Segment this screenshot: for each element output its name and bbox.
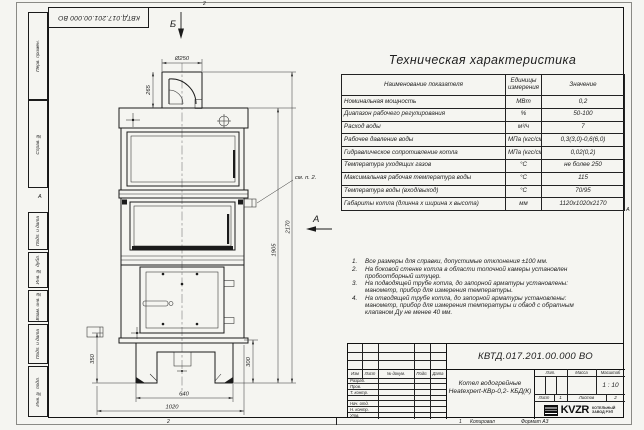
kvzr-logo: KVZR КОТЕЛЬНЫЙ ЗАВОД РЭП — [534, 401, 625, 419]
spec-cell: не более 250 — [542, 159, 625, 172]
spec-col-name: Наименование показателя — [342, 75, 506, 96]
side-column-label: Взам. инв. № — [36, 291, 41, 320]
zone-mark-bottom-right: 1 — [459, 419, 462, 425]
spec-row: Максимальная рабочая температура воды°С1… — [342, 172, 625, 185]
note-item: 4.На отводящей трубе котла, до запорной … — [352, 295, 592, 316]
spec-header-row: Наименование показателя Единицы измерени… — [342, 75, 625, 96]
tb-sheet-label: Лист — [534, 394, 554, 401]
side-column-label: Подп. и дата — [36, 329, 41, 359]
spec-cell: Температура уходящих газов — [342, 159, 506, 172]
note-item: 3.На подводящей трубе котла, до запорной… — [352, 280, 592, 294]
spec-table-title: Техническая характеристика — [341, 53, 624, 67]
note-item: 1.Все размеры для справки, допустимые от… — [352, 258, 592, 265]
spec-row: Рабочее давление водыМПа (кгс/см²)0,3(3,… — [342, 134, 625, 147]
note-text: Все размеры для справки, допустимые откл… — [365, 258, 577, 265]
side-column-inv-podl: Инв. № подл. — [28, 366, 48, 417]
note-number: 2. — [352, 266, 365, 280]
spec-cell: 115 — [542, 172, 625, 185]
spec-row: Температура уходящих газов°Сне более 250 — [342, 159, 625, 172]
spec-cell: °С — [506, 172, 542, 185]
spec-row: Температура воды (вход/выход)°С70/95 — [342, 185, 625, 198]
tb-scale-label: Масштаб — [596, 369, 625, 376]
format-label: Формат А3 — [521, 419, 548, 425]
kvzr-logo-caption: КОТЕЛЬНЫЙ ЗАВОД РЭП — [592, 406, 615, 415]
spec-cell: МВт — [506, 96, 542, 109]
copied-label: Копировал — [470, 419, 495, 425]
spec-cell: 0,3(3,0)-0,6(6,0) — [542, 134, 625, 147]
tb-mass-label: Масса — [567, 369, 596, 376]
zone-mark-bottom: 2 — [167, 419, 170, 425]
note-number: 4. — [352, 295, 365, 316]
spec-row: Диапазон рабочего регулирования%50-100 — [342, 108, 625, 121]
side-column-vzam-inv: Взам. инв. № — [28, 290, 48, 322]
side-column-sprav-no: Справ. № — [28, 100, 48, 188]
spec-cell: МПа (кгс/см²) — [506, 147, 542, 160]
spec-cell: 50-100 — [542, 108, 625, 121]
zone-mark-top: 2 — [203, 1, 206, 7]
tb-signature-rows: Разраб. Пров. Т. контр. Нач. отд. Н. кон… — [348, 378, 446, 419]
spec-cell: 1120х1020х2170 — [542, 198, 625, 211]
note-item: 2.На боковой стенке котла в области топо… — [352, 266, 592, 280]
doc-number-stamp: КВТД.017.201.00.000 ВО — [48, 7, 149, 28]
tb-sheets-value: 2 — [606, 394, 625, 401]
side-column-label: Перв. примен. — [36, 40, 41, 72]
title-block: Изм Лист № докум. Подп. Дата Разраб. Про… — [347, 343, 624, 418]
note-text: На боковой стенке котла в области топочн… — [365, 266, 577, 280]
side-column-podp-data-2: Подп. и дата — [28, 324, 48, 364]
tb-col-data: Дата — [430, 369, 446, 378]
spec-cell: °С — [506, 185, 542, 198]
kvzr-logo-text: KVZR — [561, 404, 589, 416]
spec-cell: Расход воды — [342, 121, 506, 134]
tb-row-utv: Утв. — [348, 413, 446, 419]
spec-table: Наименование показателя Единицы измерени… — [341, 74, 625, 211]
side-column-perv-primen: Перв. примен. — [28, 12, 48, 100]
kvzr-caption-line2: ЗАВОД РЭП — [592, 410, 615, 414]
spec-row: Габариты котла (длинна х ширина х высота… — [342, 198, 625, 211]
spec-cell: мм — [506, 198, 542, 211]
tb-line — [556, 376, 557, 394]
kvzr-logo-icon — [544, 405, 558, 416]
spec-cell: 0,2 — [542, 96, 625, 109]
tb-col-list: Лист — [362, 369, 378, 378]
spec-cell: % — [506, 108, 542, 121]
tb-col-dokum: № докум. — [378, 369, 414, 378]
spec-table-body: Номинальная мощностьМВт0,2Диапазон рабоч… — [342, 96, 625, 211]
spec-row: Гидравлическое сопротивление котлаМПа (к… — [342, 147, 625, 160]
spec-cell: Номинальная мощность — [342, 96, 506, 109]
tb-lit-label: Лит. — [534, 369, 567, 376]
spec-cell: МПа (кгс/см²) — [506, 134, 542, 147]
side-column-label: Инв. № дубл. — [36, 255, 41, 284]
spec-cell: °С — [506, 159, 542, 172]
spec-cell: Диапазон рабочего регулирования — [342, 108, 506, 121]
spec-cell: Рабочее давление воды — [342, 134, 506, 147]
zone-divider — [336, 418, 337, 425]
spec-cell: Максимальная рабочая температура воды — [342, 172, 506, 185]
tb-sheet-value: 1 — [554, 394, 567, 401]
spec-col-value: Значение — [542, 75, 625, 96]
note-text: На подводящей трубе котла, до запорной а… — [365, 280, 577, 294]
zone-mark-left: А — [38, 194, 42, 200]
doc-number-rotated: КВТД.017.201.00.000 ВО — [58, 14, 140, 21]
tb-product-name: Котел водогрейные Heatexpert-КВр-0,2- КБ… — [446, 369, 534, 407]
side-column-podp-data-1: Подп. и дата — [28, 212, 48, 250]
side-column-label: Справ. № — [36, 133, 41, 155]
tb-col-podp: Подп. — [414, 369, 430, 378]
note-number: 3. — [352, 280, 365, 294]
spec-cell: м³/ч — [506, 121, 542, 134]
spec-cell: 0,02(0,2) — [542, 147, 625, 160]
spec-cell: Гидравлическое сопротивление котла — [342, 147, 506, 160]
tb-col-izm: Изм — [348, 369, 362, 378]
spec-cell: 7 — [542, 121, 625, 134]
spec-row: Расход водым³/ч7 — [342, 121, 625, 134]
spec-cell: Температура воды (вход/выход) — [342, 185, 506, 198]
spec-cell: 70/95 — [542, 185, 625, 198]
spec-cell: Габариты котла (длинна х ширина х высота… — [342, 198, 506, 211]
side-column-inv-dubl: Инв. № дубл. — [28, 252, 48, 288]
tb-doc-number: КВТД.017.201.00.000 ВО — [446, 344, 625, 369]
spec-col-units: Единицы измерения — [506, 75, 542, 96]
side-column-label: Подп. и дата — [36, 216, 41, 246]
note-number: 1. — [352, 258, 365, 265]
tb-sheets-label: Листов — [567, 394, 606, 401]
note-text: На отводящей трубе котла, до запорной ар… — [365, 295, 577, 316]
tb-product-name-line1: Котел водогрейные — [459, 380, 522, 388]
zone-mark-right: А — [626, 207, 630, 213]
tb-line — [545, 376, 546, 394]
tb-product-name-line2: Heatexpert-КВр-0,2- КБД(К) — [449, 388, 532, 396]
tb-scale-value: 1 : 10 — [596, 376, 625, 394]
spec-row: Номинальная мощностьМВт0,2 — [342, 96, 625, 109]
notes-list: 1.Все размеры для справки, допустимые от… — [352, 258, 592, 316]
side-column-label: Инв. № подл. — [36, 377, 41, 407]
